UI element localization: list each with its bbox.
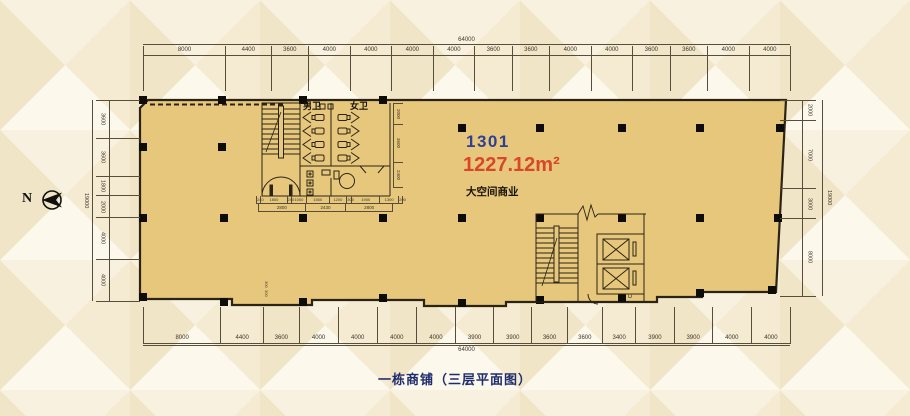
witness-line: 4400: [226, 55, 272, 91]
witness-line: 3900: [675, 307, 713, 334]
witness-line: 4000: [713, 307, 752, 334]
unit-type-label: 大空间商业: [466, 184, 519, 199]
dim-segment: 4000: [417, 334, 456, 343]
dim-witness-left: 360036001800200040004000: [110, 100, 140, 302]
dim-segment: 4000: [752, 334, 791, 343]
dim-segment: 2000: [394, 104, 403, 125]
women-wc-label: 女卫: [350, 99, 368, 112]
witness-line: 3600: [671, 55, 708, 91]
dim-segment: 3600: [96, 101, 109, 139]
dim-segment: 4000: [708, 46, 750, 55]
dim-segment: 3600: [96, 139, 109, 177]
dim-segment: 1800: [261, 196, 287, 203]
witness-line: 4000: [110, 260, 140, 302]
dim-overall-bottom-value: 64000: [458, 347, 475, 353]
dim-segment: 4000: [309, 46, 351, 55]
witness-line: 3600: [272, 55, 309, 91]
dim-segment: 4000: [96, 218, 109, 260]
dim-segment: 3600: [475, 46, 512, 55]
witness-line: 3600: [568, 307, 603, 334]
dim-segment: 4400: [226, 46, 272, 55]
witness-line: 3000: [780, 189, 802, 219]
dim-segment: 3600: [272, 46, 309, 55]
dim-segment: 3600: [633, 46, 670, 55]
witness-line: 4000: [708, 55, 750, 91]
witness-line: 3600: [513, 55, 550, 91]
dim-col-wc-right: 200036002400: [393, 103, 403, 188]
witness-line: 3600: [633, 55, 670, 91]
dim-notch-2: 300: [264, 290, 269, 297]
witness-line: 4000: [392, 55, 434, 91]
witness-line: 4000: [752, 307, 791, 334]
dim-segment: 1000: [292, 196, 307, 203]
dim-segment: 1800: [96, 177, 109, 196]
dim-segment: 7000: [803, 121, 816, 189]
dim-segment: 4000: [713, 334, 752, 343]
floor-plan-page: { "page": { "caption": "一栋商铺（三层平面图）" }, …: [0, 0, 910, 416]
dim-overall-top: 64000: [143, 36, 790, 45]
dim-segment: 3600: [568, 334, 603, 343]
dim-segment: 1550: [307, 196, 330, 203]
dim-segment: 4000: [434, 46, 476, 55]
dim-overall-top-value: 64000: [458, 37, 475, 43]
dim-segment: 3600: [394, 125, 403, 162]
dim-segment: 3600: [532, 334, 567, 343]
dim-segment: 1300: [380, 196, 399, 203]
witness-line: 4000: [592, 55, 634, 91]
witness-line: 4000: [750, 55, 792, 91]
witness-line: 4000: [550, 55, 592, 91]
elevator-label: D: [628, 294, 632, 300]
witness-line: 8000: [144, 55, 226, 91]
dim-segment: 4000: [392, 46, 434, 55]
dim-overall-right-value: 19000: [826, 190, 832, 205]
dim-witness-top: 8000440036004000400040004000360036004000…: [143, 55, 791, 91]
dim-segment: 4000: [300, 334, 339, 343]
witness-line: 2000: [110, 196, 140, 218]
witness-line: 8000: [780, 219, 802, 297]
witness-line: 4000: [110, 218, 140, 260]
dim-col-left: 360036001800200040004000: [96, 100, 110, 302]
dim-col-right: 2000700030008000: [802, 100, 816, 297]
dim-segment: 3600: [264, 334, 299, 343]
dim-segment: 4000: [750, 46, 792, 55]
dim-segment: 3400: [603, 334, 636, 343]
witness-line: 3600: [110, 139, 140, 177]
dim-segment: 3600: [513, 46, 550, 55]
dim-segment: 3900: [675, 334, 713, 343]
dim-segment: 8000: [803, 219, 816, 297]
dim-segment: 1900: [352, 196, 380, 203]
witness-line: 3600: [475, 55, 512, 91]
dim-segment: 4000: [592, 46, 634, 55]
dim-overall-bottom: 64000: [143, 345, 790, 354]
unit-number: 1301: [466, 132, 510, 152]
dim-segment: 2000: [803, 101, 816, 121]
dim-segment: 2000: [96, 196, 109, 218]
dim-segment: 8000: [144, 334, 221, 343]
dim-segment: 3900: [636, 334, 674, 343]
witness-line: 3600: [110, 101, 140, 139]
dim-segment: 4000: [96, 260, 109, 302]
dim-row-bottom: 8000440036004000400040004000390039003600…: [143, 334, 791, 344]
dim-segment: 2430: [306, 204, 347, 211]
dim-overall-right: 19000: [822, 100, 835, 296]
witness-line: 4000: [378, 307, 417, 334]
dim-overall-left-value: 19000: [83, 193, 89, 208]
witness-line: 4000: [417, 307, 456, 334]
witness-line: 4400: [221, 307, 264, 334]
witness-line: 4000: [339, 307, 378, 334]
dim-segment: 1200: [330, 196, 348, 203]
dim-segment: 8000: [144, 46, 226, 55]
dim-witness-right: 2000700030008000: [780, 100, 802, 297]
plan-caption: 一栋商铺（三层平面图）: [0, 369, 910, 388]
dim-segment: 3600: [671, 46, 708, 55]
dim-segment: 2800: [259, 204, 306, 211]
unit-area: 1227.12m²: [463, 154, 560, 177]
witness-line: 3600: [532, 307, 567, 334]
witness-line: 4000: [351, 55, 393, 91]
dim-segment: 2800: [346, 204, 393, 211]
dim-segment: 3900: [456, 334, 494, 343]
men-wc-label: 男卫: [303, 99, 321, 112]
dim-segment: 4000: [339, 334, 378, 343]
witness-line: 4000: [434, 55, 476, 91]
dim-segment: 4000: [550, 46, 592, 55]
witness-line: 4000: [300, 307, 339, 334]
dim-notch-1: 300: [264, 281, 269, 288]
dim-segment: 200: [399, 196, 403, 203]
dim-row-wc-2: 280024302800: [258, 204, 393, 212]
witness-line: 1800: [110, 177, 140, 196]
witness-line: 4000: [309, 55, 351, 91]
dim-segment: 4000: [351, 46, 393, 55]
witness-line: 8000: [144, 307, 221, 334]
witness-line: 3900: [456, 307, 494, 334]
witness-line: 7000: [780, 121, 802, 189]
dim-segment: 2400: [394, 163, 403, 188]
dim-segment: 3900: [494, 334, 532, 343]
dim-segment: 3000: [803, 189, 816, 219]
north-compass-icon: [42, 191, 62, 209]
dim-row-wc-1: 240180024010001550120030019001300200: [256, 196, 403, 204]
witness-line: 3600: [264, 307, 299, 334]
witness-line: 3900: [494, 307, 532, 334]
dim-witness-bottom: 8000440036004000400040004000390039003600…: [143, 307, 791, 334]
witness-line: 3400: [603, 307, 636, 334]
north-label: N: [22, 191, 32, 207]
witness-line: 3900: [636, 307, 674, 334]
dim-overall-left: 19000: [80, 100, 93, 301]
witness-line: 2000: [780, 101, 802, 121]
dim-segment: 4400: [221, 334, 264, 343]
dim-segment: 4000: [378, 334, 417, 343]
